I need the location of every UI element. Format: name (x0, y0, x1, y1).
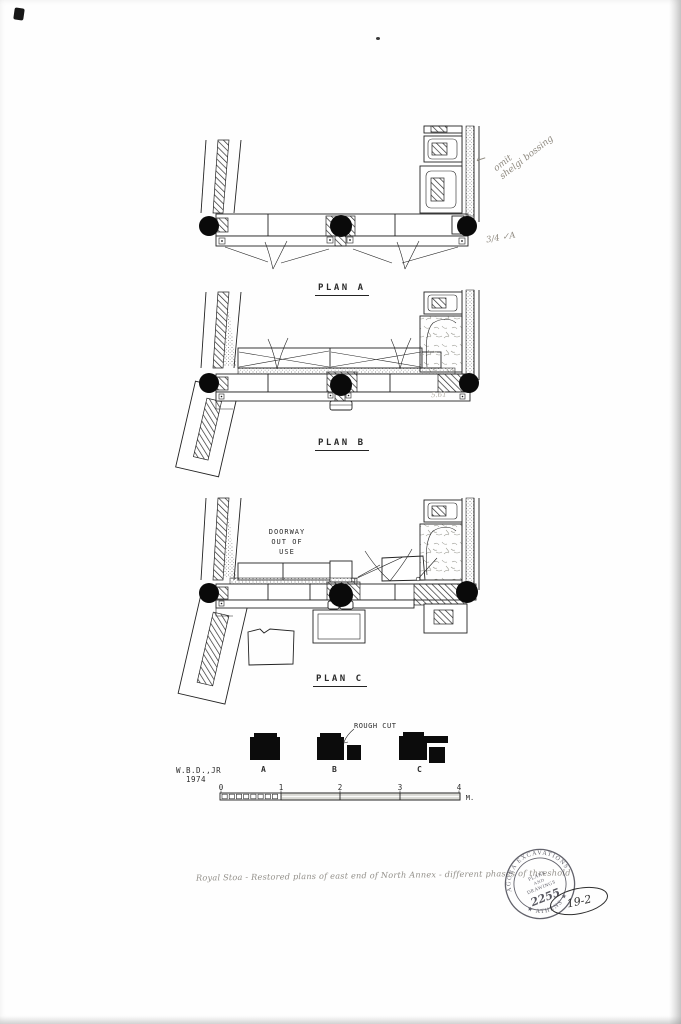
plan-b-left-wall (201, 292, 241, 368)
scale-unit: M. (466, 794, 474, 802)
legend-label-b: B (332, 765, 337, 774)
plan-c-left-wall (201, 498, 241, 580)
scan-edge-right (669, 0, 681, 1024)
plan-c-title: PLAN C (313, 674, 367, 687)
plan-a-drawing (178, 122, 508, 282)
scan-artifact-mark (13, 7, 25, 20)
plan-b-drawing (172, 286, 502, 486)
file-number-text: 19-2 (566, 893, 593, 911)
rough-cut-label: ROUGH CUT (354, 722, 396, 730)
plan-c-floor-blocks (248, 604, 467, 665)
scale-bar: 0 1 2 3 4 M. (215, 780, 480, 808)
rough-cut-arrow (343, 729, 354, 743)
legend-label-a: A (261, 765, 266, 774)
scan-edge-bottom (0, 1016, 681, 1024)
credit-initials: W.B.D.,JR (176, 766, 216, 775)
legend-block-a (250, 733, 280, 760)
file-number-oval: 19-2 (543, 884, 615, 918)
plan-b-right-wall (462, 290, 479, 380)
plan-c-annex-wall (178, 594, 248, 704)
draftsman-credit: W.B.D.,JR 1974 (176, 766, 216, 784)
plan-c-wall-blocks (420, 500, 462, 580)
pencil-measure: 5.61 (431, 391, 447, 400)
legend-block-b (317, 733, 361, 760)
scanned-drawing-sheet: PLAN A ← omit shelgi bossing 3/4 ✓A (0, 0, 681, 1024)
doorway-line3: USE (248, 547, 326, 557)
plan-a-left-wall (201, 140, 241, 213)
plan-b-wall-blocks (420, 292, 462, 372)
legend-block-c (399, 732, 448, 763)
plan-a-wall-blocks (420, 126, 462, 213)
legend-label-c: C (417, 765, 422, 774)
doorway-note: DOORWAY OUT OF USE (248, 527, 326, 557)
doorway-line2: OUT OF (248, 537, 326, 547)
doorway-line1: DOORWAY (248, 527, 326, 537)
credit-year: 1974 (176, 775, 216, 784)
plan-b-title: PLAN B (315, 438, 369, 451)
scan-artifact-dot (376, 37, 380, 40)
plan-c-right-wall (462, 498, 479, 590)
